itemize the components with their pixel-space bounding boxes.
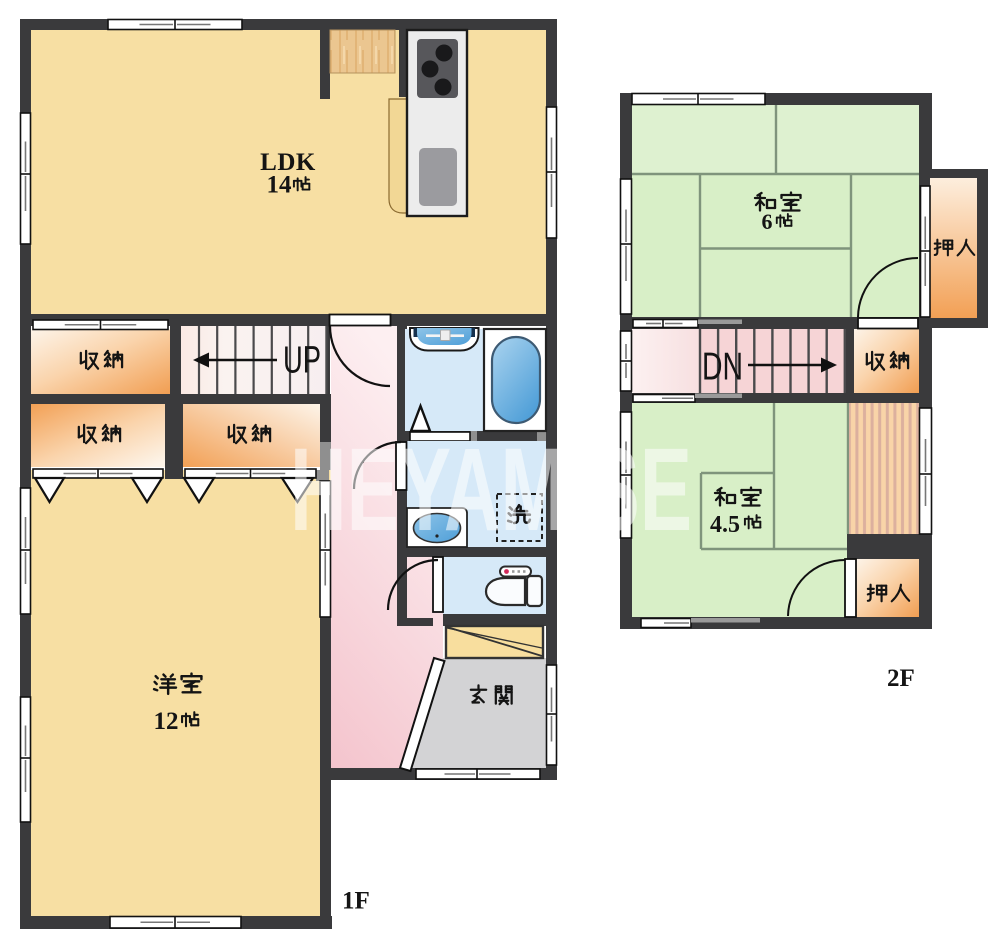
svg-text:UP: UP (283, 340, 321, 382)
svg-text:DN: DN (702, 346, 743, 389)
svg-text:2F: 2F (887, 665, 915, 692)
svg-text:14: 14 (267, 172, 293, 199)
svg-text:HEYAMISE: HEYAMISE (290, 424, 692, 556)
svg-text:4.5: 4.5 (710, 512, 740, 538)
svg-text:1F: 1F (342, 888, 370, 915)
svg-text:6: 6 (762, 209, 773, 234)
svg-text:12: 12 (154, 708, 179, 735)
